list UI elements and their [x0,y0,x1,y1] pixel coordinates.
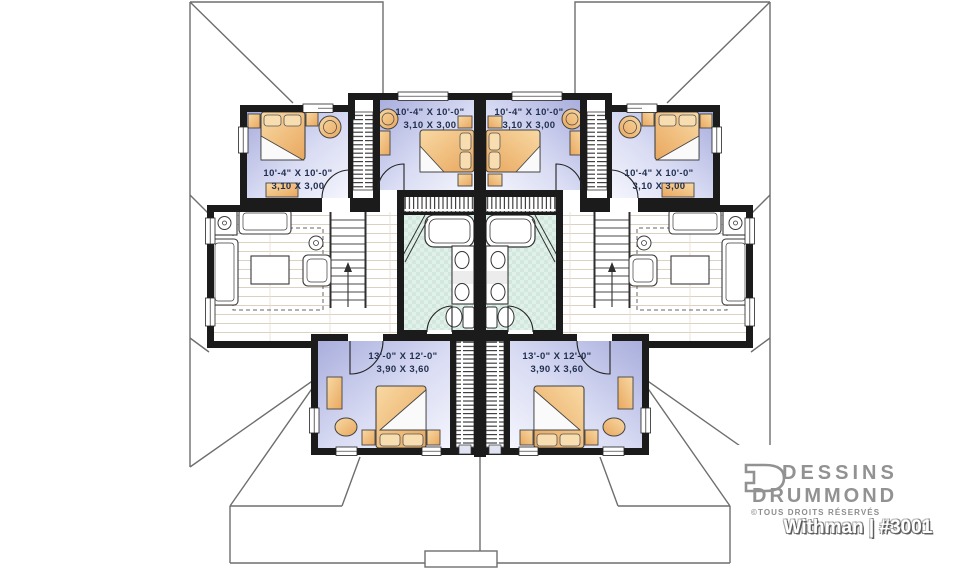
room-dimension-label-upper-left: 10'-4" X 10'-0" 3,10 X 3,00 [243,167,353,193]
duplex-unit-left [206,92,487,456]
brand-name-line1: DESSINS [782,462,898,485]
dimension-imperial: 10'-4" X 10'-0" [604,167,714,180]
room-dimension-label-lower-left: 13'-0" X 12'-0" 3,90 X 3,60 [348,350,458,376]
dimension-imperial: 10'-4" X 10'-0" [243,167,353,180]
room-dimension-label-lower-right: 13'-0" X 12'-0" 3,90 X 3,60 [502,350,612,376]
dimension-metric: 3,90 X 3,60 [502,363,612,376]
dimension-metric: 3,10 X 3,00 [243,180,353,193]
plan-model-number: Withman | #3001 [768,517,948,539]
dimension-imperial: 13'-0" X 12'-0" [348,350,458,363]
dimension-imperial: 13'-0" X 12'-0" [502,350,612,363]
dimension-metric: 3,10 X 3,00 [604,180,714,193]
dimension-metric: 3,10 X 3,00 [474,119,584,132]
room-dimension-label-upper-center-right: 10'-4" X 10'-0" 3,10 X 3,00 [474,106,584,132]
drummond-d-icon [738,445,798,497]
dimension-imperial: 10'-4" X 10'-0" [474,106,584,119]
room-dimension-label-upper-center-left: 10'-4" X 10'-0" 3,10 X 3,00 [375,106,485,132]
floorplan-page: 10'-4" X 10'-0" 3,10 X 3,00 10'-4" X 10'… [0,0,960,569]
dimension-metric: 3,10 X 3,00 [375,119,485,132]
dimension-metric: 3,90 X 3,60 [348,363,458,376]
dimension-imperial: 10'-4" X 10'-0" [375,106,485,119]
room-dimension-label-upper-right: 10'-4" X 10'-0" 3,10 X 3,00 [604,167,714,193]
duplex-unit-right [474,92,755,456]
brand-logo: DESSINS DRUMMOND ©TOUS DROITS RÉSERVÉS W… [738,445,960,569]
copyright-text: ©TOUS DROITS RÉSERVÉS [751,508,880,517]
